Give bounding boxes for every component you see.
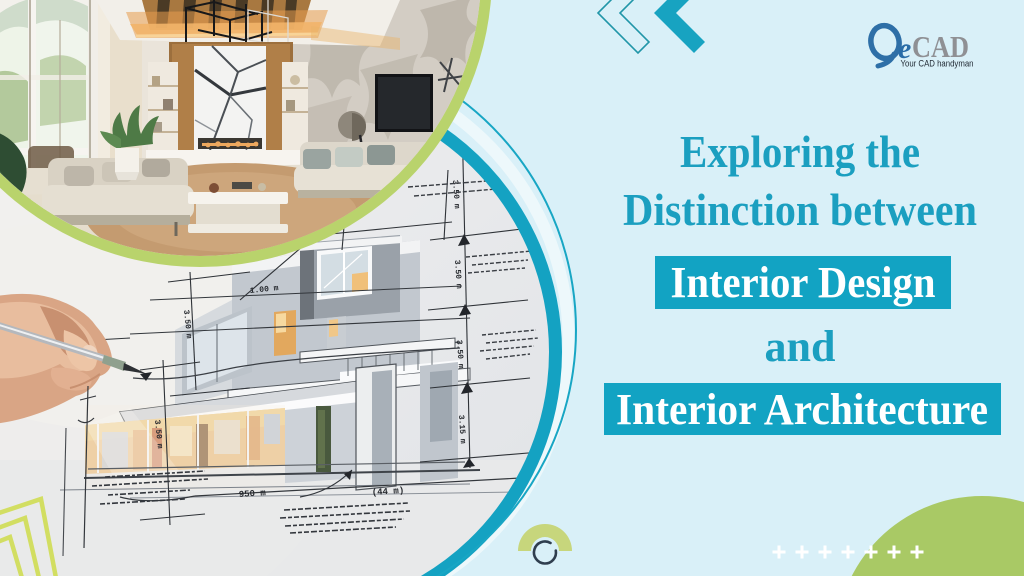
svg-text:Distinction between: Distinction between xyxy=(623,184,977,235)
svg-text:Interior Architecture: Interior Architecture xyxy=(616,385,988,434)
svg-text:Exploring the: Exploring the xyxy=(680,126,920,177)
svg-text:Your CAD handyman: Your CAD handyman xyxy=(901,59,974,69)
svg-text:Interior Design: Interior Design xyxy=(671,258,936,307)
svg-text:950 m: 950 m xyxy=(239,488,267,500)
svg-text:and: and xyxy=(765,322,836,371)
